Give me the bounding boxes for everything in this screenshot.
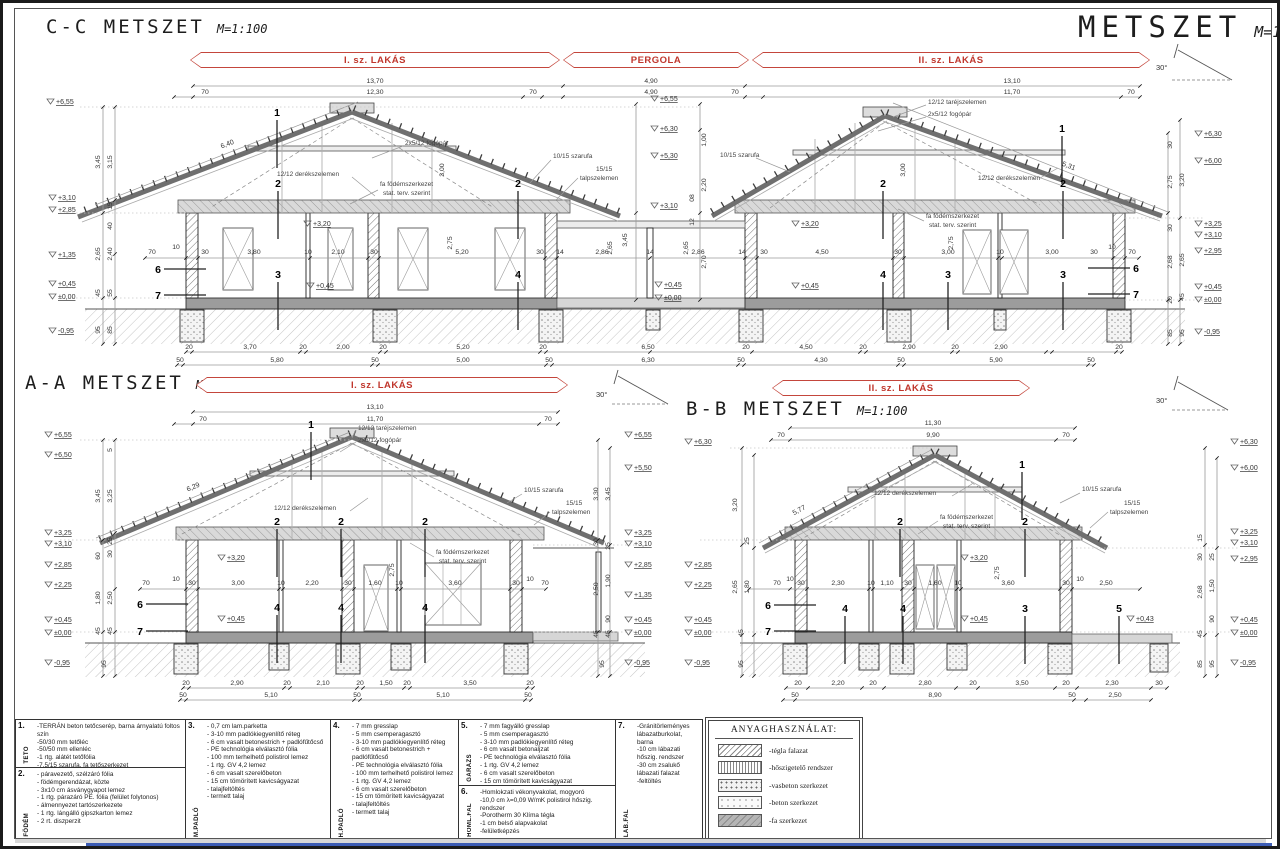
- dimension-text: 30: [760, 249, 768, 256]
- elevation-mark: [218, 555, 225, 560]
- dimension-text: 8,90: [928, 692, 941, 699]
- legend-item-lines: -Gránitörleményes lábazatburkolat, barna…: [637, 723, 698, 786]
- dimension-text: 3,20: [1179, 173, 1186, 186]
- dimension-text: 20: [299, 344, 307, 351]
- dimension-text: 45: [605, 630, 612, 638]
- dimension-text: 3,45: [622, 233, 629, 246]
- dimension-text: 90: [1209, 615, 1216, 623]
- dimension-text: 3,00: [900, 163, 907, 176]
- dimension-text: 85: [107, 326, 114, 334]
- marker-number: 7: [155, 290, 161, 302]
- dimension-text: 45: [593, 630, 600, 638]
- dimension-text: 14: [556, 249, 564, 256]
- dimension-text: 2,00: [336, 344, 349, 351]
- component-label: 12/12 taréjszelemen: [928, 99, 987, 106]
- dimension-text: 20: [182, 680, 190, 687]
- component-label: fa födémszerkezet: [436, 549, 489, 556]
- dimension-text: 30: [107, 550, 114, 558]
- elevation-mark: [1195, 131, 1202, 136]
- dimension-text: 4,50: [815, 249, 828, 256]
- material-label: -tégla falazat: [769, 746, 808, 755]
- dimension-text: 25: [1209, 553, 1216, 561]
- dimension-text: 2,50: [593, 582, 600, 595]
- material-label: -hőszigetelő rendszer: [769, 763, 833, 772]
- marker-number: 4: [515, 269, 521, 281]
- dimension-text: 1,50: [1209, 579, 1216, 592]
- bb-section-shapes: [700, 376, 1240, 700]
- elevation-text: ±0,00: [54, 630, 72, 637]
- elevation-text: +3,10: [660, 203, 678, 210]
- dimension-text: 30: [188, 580, 196, 587]
- elevation-text: +1,35: [634, 592, 652, 599]
- component-label: talpszelemen: [580, 175, 619, 182]
- legend-item-garazs: 5.GARÁZS- 7 mm fagyálló gresslap- 5 mm c…: [459, 720, 616, 786]
- marker-number: 1: [1059, 123, 1065, 135]
- aa-section-shapes: [60, 370, 668, 700]
- angle-text: 30°: [1156, 396, 1167, 405]
- dimension-text: 30: [1155, 680, 1163, 687]
- component-label: 2x5/12 fogópár: [358, 437, 402, 444]
- dimension-text: 1,80: [95, 591, 102, 604]
- dimension-text: 95: [95, 326, 102, 334]
- dimension-text: 4,90: [644, 89, 657, 96]
- elevation-text: +5,50: [634, 465, 652, 472]
- dimension-text: 30: [512, 580, 520, 587]
- dimension-text: 10: [304, 249, 312, 256]
- dimension-text: 25: [605, 542, 612, 550]
- dimension-text: 4,90: [644, 78, 657, 85]
- elevation-mark: [625, 562, 632, 567]
- component-label: 10/15 szarufa: [720, 152, 760, 159]
- dimension-text: 1,60: [368, 580, 381, 587]
- dimension-text: 70: [541, 580, 549, 587]
- reinforced-concrete-swatch: [718, 779, 762, 792]
- dimension-text: 1,60: [928, 580, 941, 587]
- dimension-text: 20: [1115, 344, 1123, 351]
- dimension-text: 15: [107, 202, 114, 210]
- elevation-mark: [218, 616, 225, 621]
- component-label: stat. terv. szerint: [943, 523, 990, 530]
- dimension-text: 6,30: [641, 357, 654, 364]
- dimension-text: 50: [524, 692, 532, 699]
- dimension-text: 14: [646, 249, 654, 256]
- elevation-text: +6,55: [634, 432, 652, 439]
- dimension-text: 50: [897, 357, 905, 364]
- component-label: fa födémszerkezet: [940, 514, 993, 521]
- dimension-text: 2,30: [831, 580, 844, 587]
- dimension-text: 1,90: [605, 574, 612, 587]
- elevation-text: +2,25: [54, 582, 72, 589]
- elevation-mark: [625, 530, 632, 535]
- marker-number: 4: [842, 603, 848, 615]
- elevation-mark: [1231, 465, 1238, 470]
- elevation-mark: [49, 207, 56, 212]
- legend-item-lines: -Homlokzati vékonyvakolat, mogyoró-10,0 …: [480, 789, 613, 836]
- marker-number: 4: [274, 602, 280, 614]
- dimension-text: 2,86: [595, 249, 608, 256]
- marker-number: 5: [1116, 603, 1122, 615]
- dimension-text: 3,20: [732, 498, 739, 511]
- elevation-mark: [1231, 660, 1238, 665]
- elevation-text: +0,45: [54, 617, 72, 624]
- elevation-mark: [45, 617, 52, 622]
- dimension-text: 50: [353, 692, 361, 699]
- dimension-text: 2,75: [1167, 175, 1174, 188]
- elevation-mark: [49, 195, 56, 200]
- dimension-text: 2,68: [1197, 585, 1204, 598]
- dimension-text: 50: [545, 357, 553, 364]
- elevation-text: +2,85: [634, 562, 652, 569]
- dimension-text: 60: [95, 552, 102, 560]
- dimension-text: 10: [954, 580, 962, 587]
- dimension-text: 95: [101, 660, 108, 668]
- elevation-mark: [49, 281, 56, 286]
- dimension-text: 3,45: [95, 155, 102, 168]
- dimension-text: 95: [1179, 329, 1186, 337]
- dimension-text: 2,65: [683, 241, 690, 254]
- elevation-text: ±0,00: [694, 630, 712, 637]
- elevation-text: +6,55: [660, 96, 678, 103]
- dimension-text: 3,30: [593, 487, 600, 500]
- legend-item-labfal: 7.LÁB.FAL-Gránitörleményes lábazatburkol…: [616, 720, 700, 840]
- component-label: 12/12 derékszelemen: [274, 505, 337, 512]
- dimension-text: 45: [1179, 293, 1186, 301]
- elevation-mark: [685, 630, 692, 635]
- elevation-text: -0,95: [634, 660, 650, 667]
- drawing-sheet: C-C METSZETM=1:100 METSZETM=1:100 A-A ME…: [0, 0, 1280, 849]
- legend-item-number: 5.: [461, 721, 468, 730]
- wood-structure-swatch: [718, 814, 762, 827]
- elevation-text: +6,00: [1240, 465, 1258, 472]
- dimension-text: 5,10: [436, 692, 449, 699]
- materials-legend: ANYAGHASZNÁLAT: -tégla falazat -hősziget…: [708, 720, 860, 840]
- legend-item-category: LÁB.FAL: [624, 809, 630, 837]
- elevation-mark: [1195, 221, 1202, 226]
- dimension-text: 3,50: [463, 680, 476, 687]
- dimension-text: 20: [283, 680, 291, 687]
- legend-item-number: 7.: [618, 721, 625, 730]
- dimension-text: 2,75: [994, 566, 1001, 579]
- angle-text: 30°: [1156, 63, 1167, 72]
- elevation-text: +3,10: [54, 541, 72, 548]
- dimension-text: 3,00: [439, 163, 446, 176]
- legend-item-number: 2.: [18, 769, 25, 778]
- elevation-mark: [1127, 616, 1134, 621]
- dimension-text: 5: [107, 448, 114, 452]
- marker-number: 2: [422, 516, 428, 528]
- elevation-mark: [45, 530, 52, 535]
- dimension-text: 08: [689, 194, 696, 202]
- dimension-text: 3,45: [95, 489, 102, 502]
- dimension-text: 12: [689, 218, 696, 226]
- dimension-text: 50: [179, 692, 187, 699]
- dimension-text: 50: [371, 357, 379, 364]
- dimension-text: 30: [904, 580, 912, 587]
- marker-number: 2: [338, 516, 344, 528]
- dimension-text: 5,20: [455, 249, 468, 256]
- elevation-mark: [685, 439, 692, 444]
- dimension-text: 13,10: [1003, 78, 1020, 85]
- elevation-text: +0,43: [1136, 616, 1154, 623]
- elevation-mark: [792, 221, 799, 226]
- dimension-text: 30: [370, 249, 378, 256]
- marker-number: 7: [137, 626, 143, 638]
- dimension-text: 70: [731, 89, 739, 96]
- dimension-text: 4,50: [799, 344, 812, 351]
- dimension-text: 20: [951, 344, 959, 351]
- elevation-text: -0,95: [1204, 329, 1220, 336]
- elevation-mark: [625, 465, 632, 470]
- legend-item-category: HOML.FAL: [467, 803, 473, 837]
- legend-item-lines: - 7 mm gresslap- 5 mm csemperagasztó- 3-…: [352, 723, 456, 817]
- dimension-text: 10: [172, 244, 180, 251]
- elevation-text: +3,10: [634, 541, 652, 548]
- dimension-text: 5,90: [989, 357, 1002, 364]
- elevation-mark: [49, 328, 56, 333]
- elevation-mark: [45, 630, 52, 635]
- dimension-text: 3,25: [107, 489, 114, 502]
- dimension-text: 2,50: [107, 591, 114, 604]
- dimension-text: 2,50: [1099, 580, 1112, 587]
- elevation-mark: [685, 562, 692, 567]
- dimension-text: 3,60: [1001, 580, 1014, 587]
- component-label: stat. terv. szerint: [439, 558, 486, 565]
- legend-item-lines: - 0,7 cm lam.parketta- 3-10 mm padlókieg…: [207, 723, 328, 801]
- dimension-text: 10: [786, 576, 794, 583]
- elevation-text: +6,55: [54, 432, 72, 439]
- elevation-mark: [1231, 617, 1238, 622]
- dimension-text: 45: [107, 627, 114, 635]
- slope-dimension: 6,29: [186, 482, 201, 494]
- elevation-text: ±0,00: [58, 294, 76, 301]
- dimension-text: 85: [1167, 329, 1174, 337]
- dimension-text: 30: [201, 249, 209, 256]
- dimension-text: 2,68: [1167, 255, 1174, 268]
- dimension-text: 30: [1062, 580, 1070, 587]
- material-label: -vasbeton szerkezet: [769, 781, 828, 790]
- dimension-text: 5,80: [270, 357, 283, 364]
- dimension-text: 2,20: [831, 680, 844, 687]
- dimension-text: 2,10: [316, 680, 329, 687]
- elevation-text: +0,45: [227, 616, 245, 623]
- legend-item-category: FÖDÉM: [24, 813, 30, 837]
- dimension-text: 10: [395, 580, 403, 587]
- dimension-text: 50: [791, 692, 799, 699]
- elevation-text: +3,25: [634, 530, 652, 537]
- component-label: talpszelemen: [1110, 509, 1149, 516]
- dimension-text: 85: [1197, 660, 1204, 668]
- elevation-mark: [49, 252, 56, 257]
- elevation-text: -0,95: [1240, 660, 1256, 667]
- marker-number: 2: [880, 178, 886, 190]
- marker-number: 6: [1133, 263, 1139, 275]
- dimension-text: 30: [1090, 249, 1098, 256]
- legend-item-category: H.PADLÓ: [339, 808, 345, 837]
- dimension-text: 30: [344, 580, 352, 587]
- marker-number: 4: [880, 269, 886, 281]
- elevation-mark: [45, 582, 52, 587]
- marker-number: 2: [1060, 178, 1066, 190]
- dimension-text: 2,20: [701, 178, 708, 191]
- component-label: fa födémszerkezet: [380, 181, 433, 188]
- dimension-text: 90: [605, 615, 612, 623]
- dimension-text: 70: [199, 416, 207, 423]
- layer-legend-table: 1.TETŐ-TERRÁN beton tetőcserép, barna ár…: [15, 719, 703, 842]
- elevation-text: ±0,00: [634, 630, 652, 637]
- legend-item-homlfal: 6.HOML.FAL-Homlokzati vékonyvakolat, mog…: [459, 786, 616, 840]
- material-row: -tégla falazat: [718, 744, 850, 757]
- dimension-text: 14: [738, 249, 746, 256]
- component-label: 2x5/12 fogópár: [405, 140, 449, 147]
- dimension-text: 10: [526, 576, 534, 583]
- dimension-text: 1,00: [701, 133, 708, 146]
- legend-item-category: GARÁZS: [467, 754, 473, 782]
- marker-number: 2: [515, 178, 521, 190]
- dimension-text: 12,30: [366, 89, 383, 96]
- elevation-text: -0,95: [694, 660, 710, 667]
- dimension-text: 25: [107, 537, 114, 545]
- dimension-text: 30: [1167, 141, 1174, 149]
- elevation-text: +0,45: [58, 281, 76, 288]
- dimension-text: 45: [95, 289, 102, 297]
- component-label: stat. terv. szerint: [383, 190, 430, 197]
- dimension-text: 20: [403, 680, 411, 687]
- elevation-text: +3,10: [58, 195, 76, 202]
- dimension-text: 11,30: [925, 420, 942, 427]
- component-label: 12/12 derékszelemen: [978, 175, 1041, 182]
- dimension-text: 30: [536, 249, 544, 256]
- dimension-text: 10: [867, 580, 875, 587]
- dimension-text: 70: [773, 580, 781, 587]
- angle-text: 30°: [596, 390, 607, 399]
- elevation-text: +6,30: [660, 126, 678, 133]
- elevation-mark: [651, 153, 658, 158]
- elevation-text: ±0,00: [664, 295, 682, 302]
- elevation-mark: [45, 660, 52, 665]
- elevation-mark: [1195, 158, 1202, 163]
- elevation-text: +0,45: [801, 283, 819, 290]
- elevation-text: +3,10: [1204, 232, 1222, 239]
- dimension-text: 2,40: [107, 247, 114, 260]
- dimension-text: 2,10: [331, 249, 344, 256]
- component-label: fa födémszerkezet: [926, 213, 979, 220]
- dimension-text: 20: [356, 680, 364, 687]
- dimension-text: 20: [1062, 680, 1070, 687]
- elevation-text: ±0,00: [1240, 630, 1258, 637]
- dimension-text: 20: [185, 344, 193, 351]
- dimension-text: 95: [1209, 660, 1216, 668]
- material-row: -beton szerkezet: [718, 796, 850, 809]
- elevation-text: +6,00: [1204, 158, 1222, 165]
- elevation-text: +1,35: [58, 252, 76, 259]
- elevation-mark: [45, 562, 52, 567]
- component-label: 10/15 szarufa: [524, 487, 564, 494]
- dimension-text: 55: [107, 289, 114, 297]
- dimension-text: 2,75: [447, 236, 454, 249]
- elevation-mark: [1231, 630, 1238, 635]
- elevation-mark: [1195, 248, 1202, 253]
- marker-number: 4: [900, 603, 906, 615]
- elevation-mark: [1195, 297, 1202, 302]
- elevation-mark: [47, 99, 54, 104]
- elevation-mark: [45, 432, 52, 437]
- dimension-text: 50: [737, 357, 745, 364]
- dimension-text: 3,15: [107, 155, 114, 168]
- elevation-text: +3,20: [970, 555, 988, 562]
- elevation-text: -0,95: [54, 660, 70, 667]
- dimension-text: 70: [142, 580, 150, 587]
- dimension-text: 2,86: [691, 249, 704, 256]
- roof-angle-indicator: [1172, 376, 1228, 410]
- component-label: 10/15 szarufa: [553, 153, 593, 160]
- marker-number: 4: [422, 602, 428, 614]
- elevation-text: +6,30: [694, 439, 712, 446]
- component-label: 12/12 derékszelemen: [277, 171, 340, 178]
- dimension-text: 20: [526, 680, 534, 687]
- elevation-text: +0,45: [634, 617, 652, 624]
- dimension-text: 10: [1076, 576, 1084, 583]
- dimension-text: 25: [744, 537, 751, 545]
- dimension-text: 20: [742, 344, 750, 351]
- dimension-text: 50: [1087, 357, 1095, 364]
- dimension-text: 3,50: [1015, 680, 1028, 687]
- dimension-text: 5,20: [456, 344, 469, 351]
- elevation-mark: [961, 616, 968, 621]
- elevation-mark: [1195, 232, 1202, 237]
- elevation-mark: [1195, 284, 1202, 289]
- concrete-swatch: [718, 796, 762, 809]
- materials-title: ANYAGHASZNÁLAT:: [715, 725, 853, 739]
- roof-angle-indicator: [612, 370, 668, 404]
- marker-number: 2: [897, 516, 903, 528]
- elevation-mark: [961, 555, 968, 560]
- dimension-text: 3,00: [231, 580, 244, 587]
- dimension-text: 30: [894, 249, 902, 256]
- dimension-text: 13,10: [366, 404, 383, 411]
- dimension-text: 95: [599, 660, 606, 668]
- component-label: talpszelemen: [552, 509, 591, 516]
- elevation-text: +3,25: [54, 530, 72, 537]
- material-row: -hőszigetelő rendszer: [718, 761, 850, 774]
- elevation-text: +3,25: [1204, 221, 1222, 228]
- elevation-text: +0,45: [1240, 617, 1258, 624]
- component-label: stat. terv. szerint: [929, 222, 976, 229]
- marker-number: 6: [155, 264, 161, 276]
- dimension-text: 2,65: [732, 580, 739, 593]
- legend-item-number: 4.: [333, 721, 340, 730]
- elevation-text: +0,45: [316, 283, 334, 290]
- component-label: 2x5/12 fogópár: [928, 111, 972, 118]
- dimension-text: 2,75: [948, 236, 955, 249]
- dimension-text: 70: [1062, 432, 1070, 439]
- elevation-mark: [1231, 529, 1238, 534]
- elevation-text: +3,25: [1240, 529, 1258, 536]
- elevation-text: +0,45: [970, 616, 988, 623]
- elevation-mark: [45, 541, 52, 546]
- dimension-text: 4,30: [814, 357, 827, 364]
- dimension-text: 3,45: [605, 487, 612, 500]
- elevation-text: +0,45: [694, 617, 712, 624]
- dimension-text: 70: [201, 89, 209, 96]
- dimension-text: 3,80: [247, 249, 260, 256]
- elevation-text: +6,30: [1240, 439, 1258, 446]
- component-label: 15/15: [566, 500, 583, 507]
- dimension-text: 45: [1197, 630, 1204, 638]
- dimension-text: 10: [1108, 244, 1116, 251]
- elevation-mark: [651, 126, 658, 131]
- elevation-mark: [1231, 556, 1238, 561]
- elevation-mark: [625, 592, 632, 597]
